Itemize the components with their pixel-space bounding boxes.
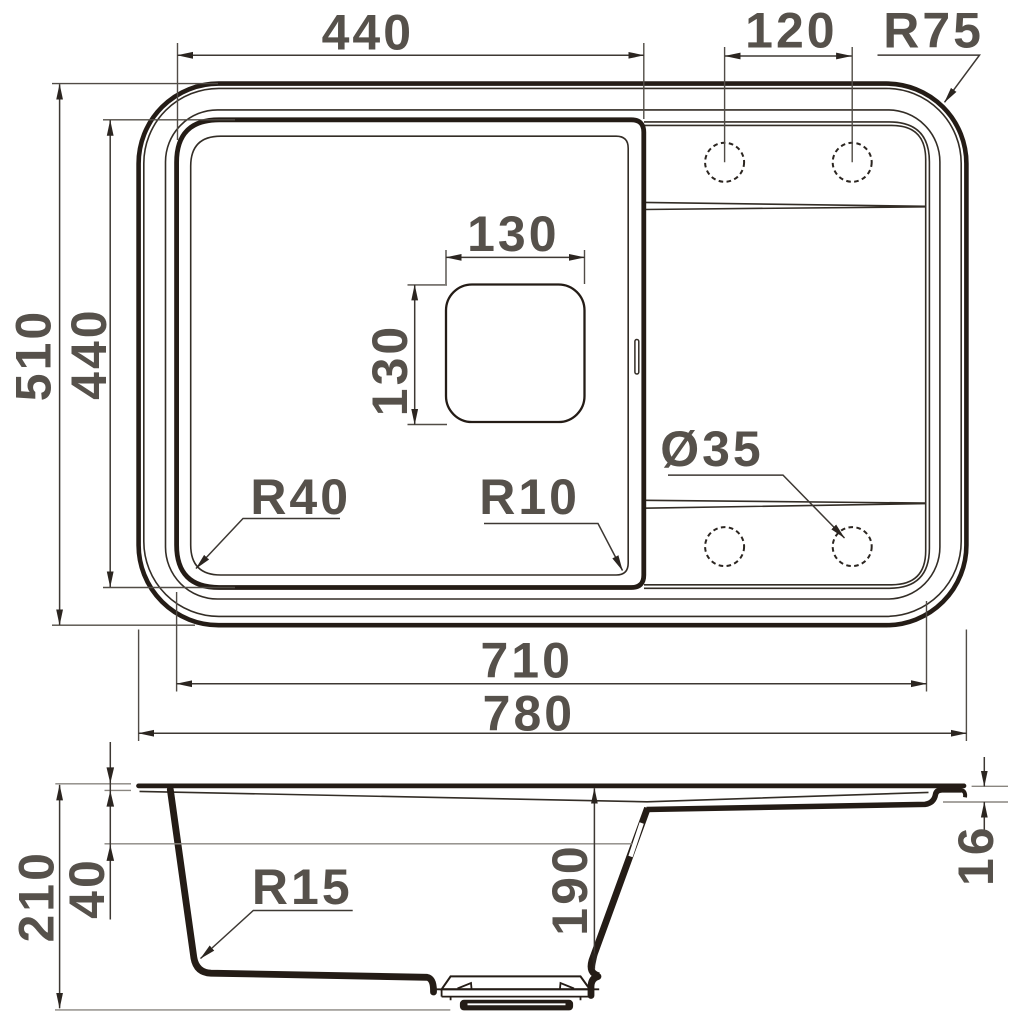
svg-text:210: 210 <box>9 850 65 942</box>
svg-text:780: 780 <box>483 686 575 742</box>
svg-text:R15: R15 <box>252 859 353 915</box>
svg-text:190: 190 <box>542 843 598 935</box>
svg-text:R10: R10 <box>479 469 580 525</box>
svg-text:16: 16 <box>948 824 1004 886</box>
svg-text:R75: R75 <box>883 2 984 58</box>
svg-text:440: 440 <box>322 5 414 61</box>
svg-text:120: 120 <box>745 3 837 59</box>
svg-text:Ø35: Ø35 <box>660 421 764 477</box>
svg-text:R40: R40 <box>250 469 351 525</box>
svg-text:510: 510 <box>6 309 62 401</box>
svg-text:130: 130 <box>362 324 418 416</box>
svg-text:440: 440 <box>61 307 117 399</box>
svg-text:130: 130 <box>467 206 559 262</box>
svg-text:40: 40 <box>59 857 115 919</box>
svg-text:710: 710 <box>480 633 572 689</box>
